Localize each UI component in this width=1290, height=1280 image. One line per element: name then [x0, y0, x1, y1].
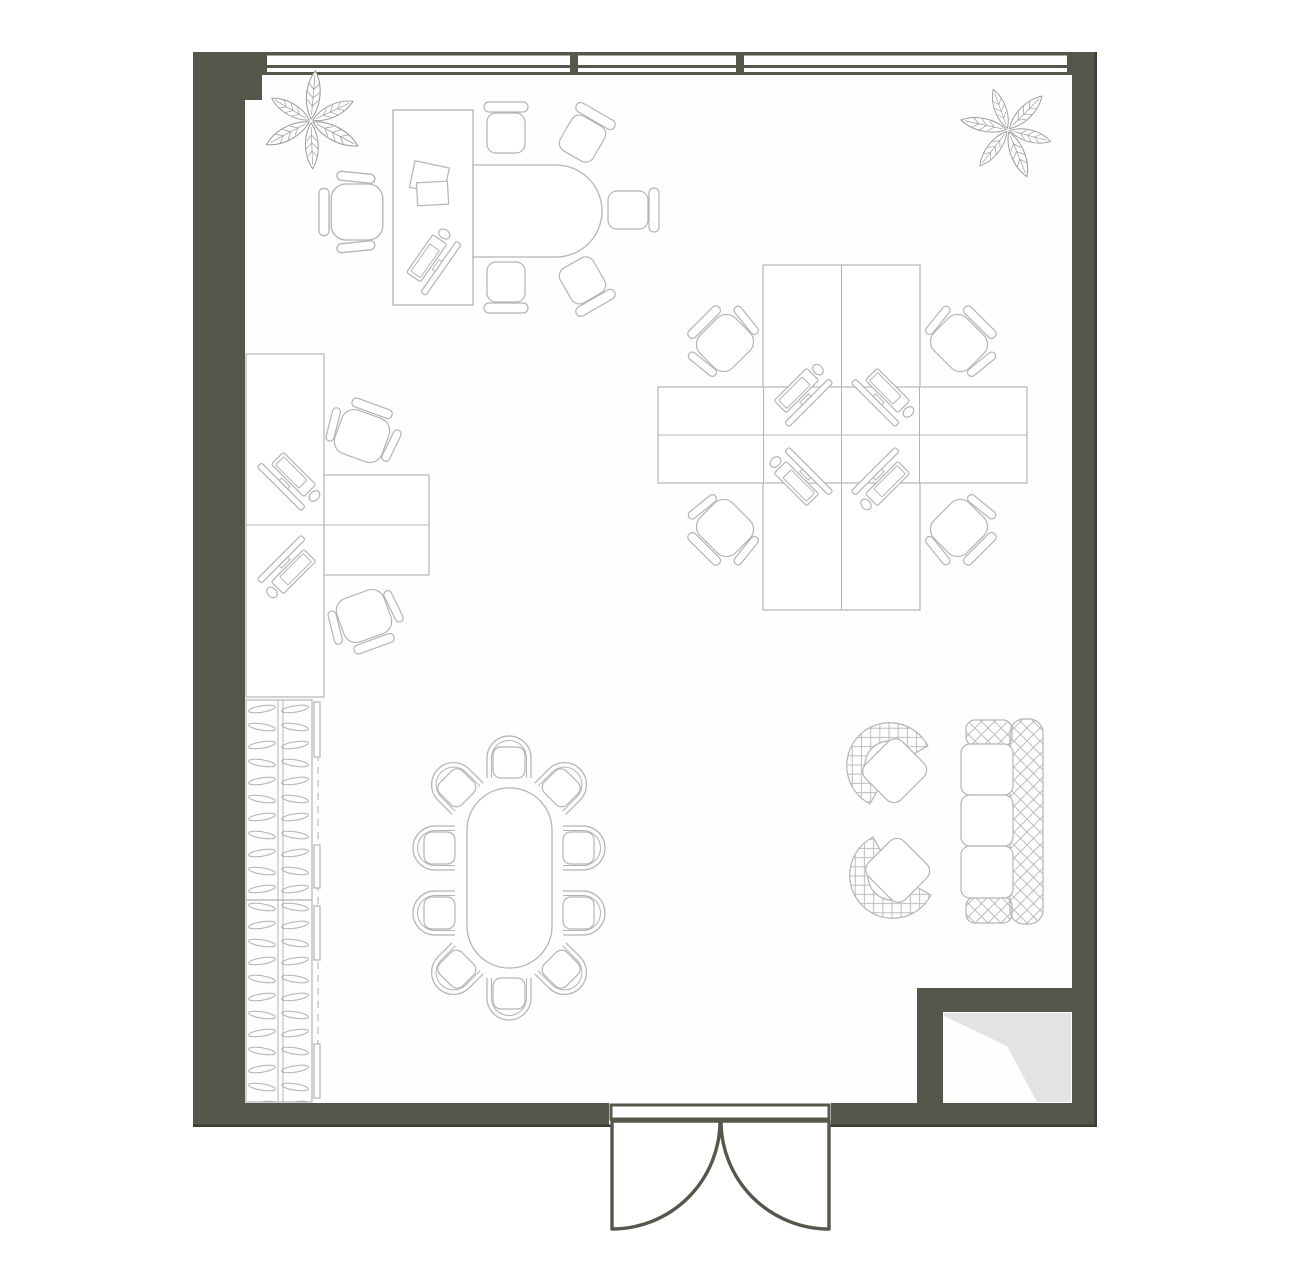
wardrobe-unit-1 [246, 700, 312, 900]
wardrobe-door-panel-2 [314, 845, 320, 888]
wardrobe-door-panel-3 [314, 906, 320, 960]
visitor-chair-1 [484, 102, 528, 153]
sofa-armrest-bottom [966, 897, 1012, 923]
sofa-cushion-1 [961, 744, 1013, 795]
top-left-pillar [193, 52, 262, 100]
sofa [961, 719, 1043, 924]
door-threshold [611, 1105, 829, 1119]
sofa-cushion-3 [961, 846, 1013, 898]
wardrobe-door-panel-4 [314, 1044, 320, 1098]
niche-left-wall [917, 988, 943, 1103]
window-mullion-2 [736, 52, 744, 75]
window-mullion-1 [570, 52, 578, 75]
bottom-wall-left [193, 1103, 609, 1127]
left-wall [193, 52, 245, 1127]
wardrobe-door-panel-1 [314, 702, 320, 757]
workstation-cluster [658, 265, 1027, 610]
wardrobe [246, 700, 320, 1102]
visitor-chair-3 [608, 188, 659, 232]
bottom-wall-right [831, 1103, 1097, 1127]
sofa-cushion-2 [961, 795, 1013, 846]
window-end-post-left [262, 52, 267, 75]
floor-plan-page [0, 0, 1290, 1280]
visitor-chair-5 [484, 262, 528, 313]
sofa-armrest-top [966, 720, 1012, 746]
meeting-extension-table [473, 165, 602, 257]
wardrobe-unit-2 [246, 900, 312, 1102]
window-outer-line [262, 52, 1072, 56]
office-floor-plan [0, 0, 1290, 1280]
paper-stack-2 [416, 181, 448, 206]
window-end-post-right [1067, 52, 1072, 75]
window-inner-line-2 [262, 72, 1072, 75]
window-inner-line-1 [262, 65, 1072, 68]
oval-conference-table [467, 788, 552, 968]
sofa-back [1010, 719, 1043, 924]
right-wall-edge [1095, 52, 1098, 1127]
right-wall [1072, 52, 1097, 1127]
